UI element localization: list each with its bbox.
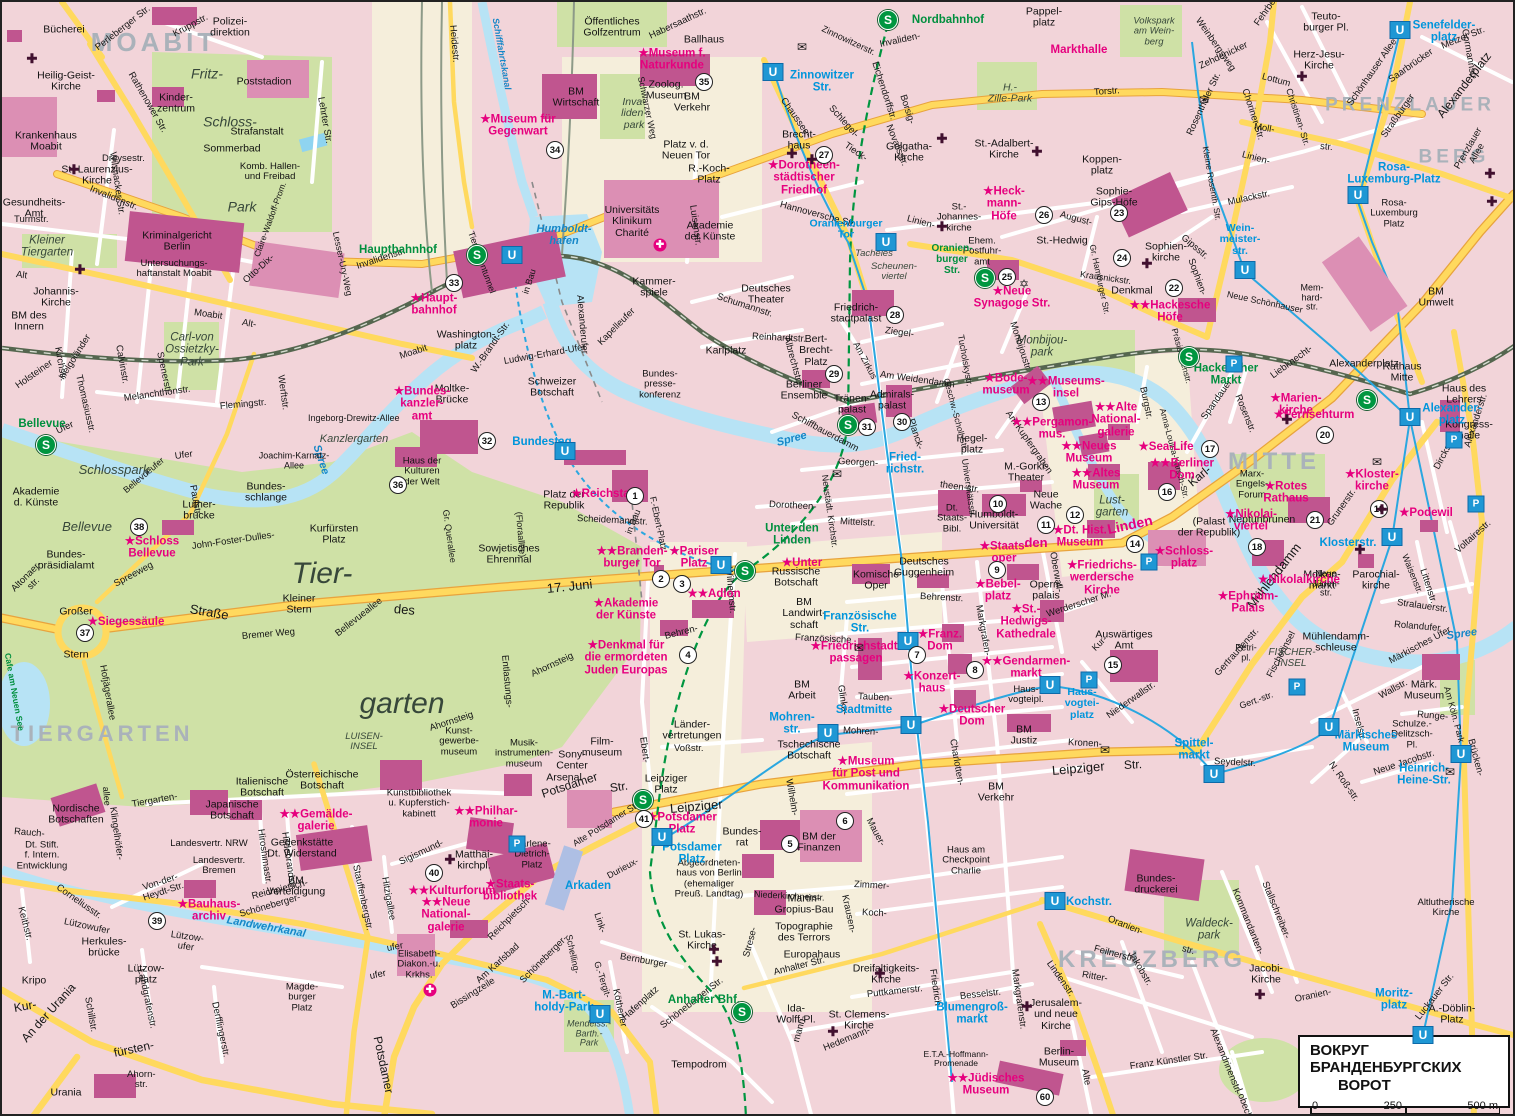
poi-number-marker: 21 [1306, 511, 1324, 529]
poi-number-marker: 1 [626, 487, 644, 505]
poi-number-marker: 40 [425, 864, 443, 882]
poi-number-marker: 15 [1104, 656, 1122, 674]
poi-number-marker: 6 [836, 812, 854, 830]
parking-badge: P [1141, 554, 1158, 571]
poi-number-marker: 30 [893, 413, 911, 431]
u-bahn-station-badge: U [1451, 745, 1472, 763]
scale-bar: 0 250 500 m [1310, 1100, 1500, 1116]
poi-number-marker: 10 [989, 495, 1007, 513]
poi-number-marker: 19 [1370, 500, 1388, 518]
poi-number-marker: 12 [1066, 506, 1084, 524]
poi-number-marker: 39 [148, 912, 166, 930]
poi-number-marker: 60 [1036, 1088, 1054, 1106]
poi-number-marker: 2 [652, 570, 670, 588]
poi-number-marker: 36 [389, 476, 407, 494]
scale-start: 0 [1312, 1100, 1318, 1112]
u-bahn-station-badge: U [502, 246, 523, 264]
poi-number-marker: 26 [1035, 206, 1053, 224]
poi-number-marker: 24 [1113, 249, 1131, 267]
poi-number-marker: 9 [988, 561, 1006, 579]
parking-badge: P [1289, 679, 1306, 696]
parking-badge: P [1226, 356, 1243, 373]
s-bahn-station-badge: S [36, 435, 56, 455]
poi-number-marker: 35 [695, 73, 713, 91]
poi-number-marker: 38 [130, 518, 148, 536]
parking-badge: P [509, 836, 526, 853]
u-bahn-station-badge: U [1382, 528, 1403, 546]
poi-number-marker: 16 [1158, 483, 1176, 501]
poi-number-marker: 32 [478, 432, 496, 450]
u-bahn-station-badge: U [652, 828, 673, 846]
poi-number-marker: 23 [1110, 204, 1128, 222]
poi-number-marker: 41 [635, 810, 653, 828]
u-bahn-station-badge: U [1204, 765, 1225, 783]
parking-badge: P [1081, 672, 1098, 689]
poi-number-marker: 8 [966, 661, 984, 679]
map-title-line1: ВОКРУГ БРАНДЕНБУРГСКИХ [1310, 1042, 1500, 1077]
u-bahn-station-badge: U [1235, 261, 1256, 279]
u-bahn-station-badge: U [1045, 892, 1066, 910]
s-bahn-station-badge: S [878, 10, 898, 30]
poi-number-marker: 27 [815, 146, 833, 164]
u-bahn-station-badge: U [1040, 676, 1061, 694]
u-bahn-station-badge: U [818, 724, 839, 742]
u-bahn-station-badge: U [901, 716, 922, 734]
s-bahn-station-badge: S [975, 268, 995, 288]
parking-badge: P [1446, 432, 1463, 449]
poi-number-marker: 29 [825, 365, 843, 383]
u-bahn-station-badge: U [590, 1005, 611, 1023]
poi-number-marker: 34 [546, 141, 564, 159]
poi-number-marker: 11 [1037, 516, 1055, 534]
u-bahn-station-badge: U [711, 556, 732, 574]
s-bahn-station-badge: S [633, 790, 653, 810]
poi-number-marker: 28 [886, 306, 904, 324]
u-bahn-station-badge: U [763, 63, 784, 81]
u-bahn-station-badge: U [1390, 21, 1411, 39]
poi-number-marker: 3 [673, 575, 691, 593]
map-title-line2: ВОРОТ [1338, 1077, 1500, 1094]
u-bahn-station-badge: U [1400, 408, 1421, 426]
scale-end: 500 m [1467, 1100, 1498, 1112]
u-bahn-station-badge: U [555, 442, 576, 460]
u-bahn-station-badge: U [1348, 186, 1369, 204]
map-canvas[interactable]: ВОКРУГ БРАНДЕНБУРГСКИХ ВОРОТ 0 250 500 m… [0, 0, 1515, 1116]
s-bahn-station-badge: S [838, 415, 858, 435]
s-bahn-station-badge: S [467, 245, 487, 265]
poi-number-marker: 37 [76, 624, 94, 642]
poi-number-marker: 5 [781, 835, 799, 853]
scale-mid: 250 [1384, 1100, 1402, 1112]
poi-number-marker: 18 [1248, 538, 1266, 556]
poi-number-marker: 17 [1201, 440, 1219, 458]
poi-number-marker: 25 [998, 268, 1016, 286]
s-bahn-station-badge: S [1179, 347, 1199, 367]
u-bahn-station-badge: U [1319, 718, 1340, 736]
s-bahn-station-badge: S [1357, 390, 1377, 410]
map-base-art [2, 2, 1515, 1116]
poi-number-marker: 31 [858, 418, 876, 436]
poi-number-marker: 13 [1032, 393, 1050, 411]
poi-number-marker: 22 [1165, 279, 1183, 297]
poi-number-marker: 14 [1126, 535, 1144, 553]
s-bahn-station-badge: S [732, 1002, 752, 1022]
poi-number-marker: 4 [679, 646, 697, 664]
poi-number-marker: 20 [1316, 426, 1334, 444]
s-bahn-station-badge: S [735, 561, 755, 581]
u-bahn-station-badge: U [1413, 1026, 1434, 1044]
u-bahn-station-badge: U [876, 233, 897, 251]
poi-number-marker: 7 [908, 646, 926, 664]
parking-badge: P [1468, 496, 1485, 513]
map-title-box: ВОКРУГ БРАНДЕНБУРГСКИХ ВОРОТ 0 250 500 m [1298, 1035, 1510, 1108]
poi-number-marker: 33 [445, 274, 463, 292]
